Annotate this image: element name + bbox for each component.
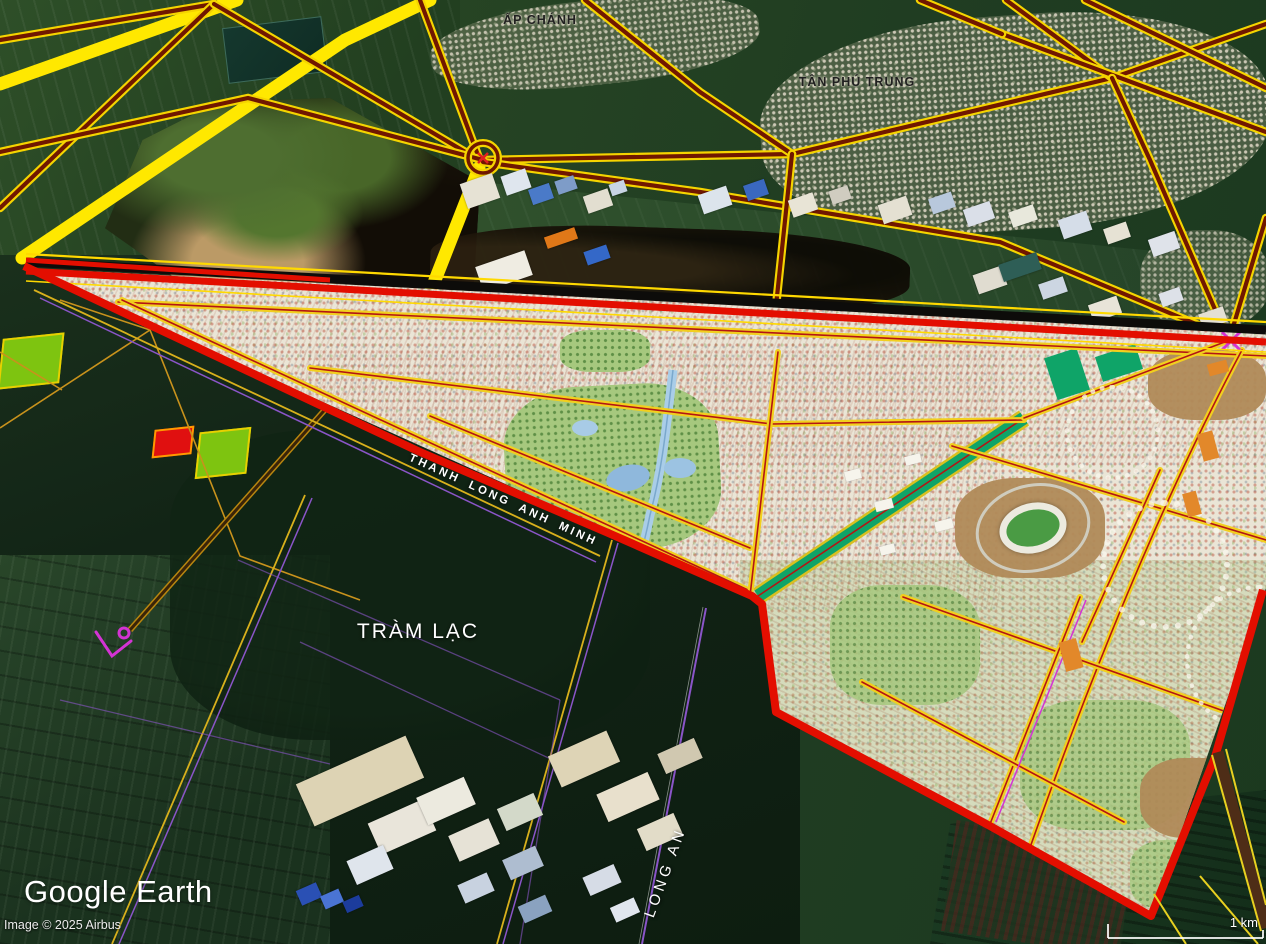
google-earth-viewport[interactable]: ẤP CHÁNH TÂN PHÚ TRUNG TRÀM LẠC LONG AN … [0, 0, 1266, 944]
scale-bar [0, 0, 1266, 944]
scale-bar-label: 1 km [1230, 915, 1258, 930]
